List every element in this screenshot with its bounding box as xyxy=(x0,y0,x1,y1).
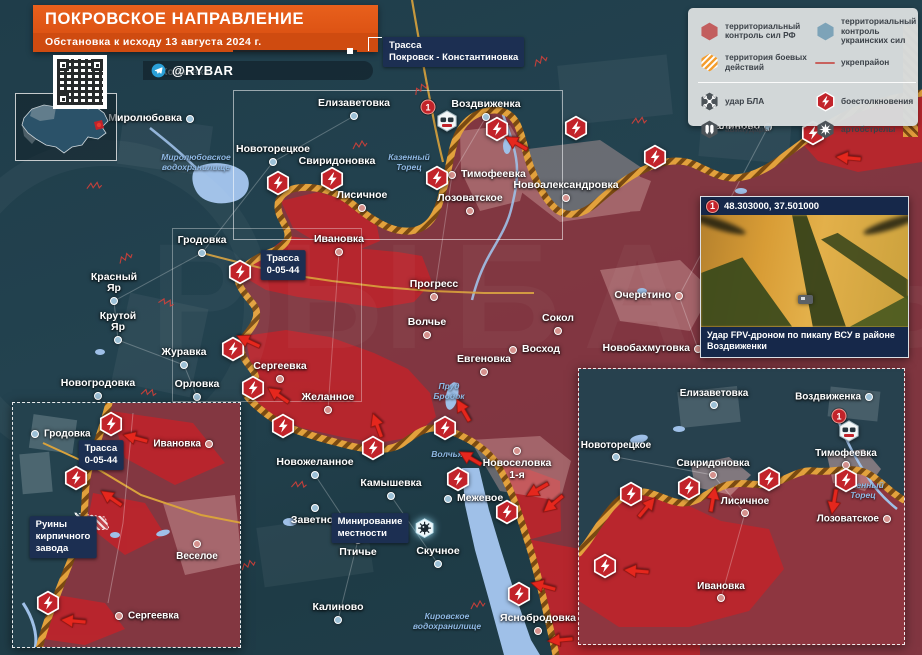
attack-arrow-icon xyxy=(94,482,129,514)
town-dot xyxy=(198,249,206,257)
fortification-mark xyxy=(531,51,549,65)
map-poster: РЫБАРЬ МиролюбовкаКопаевкаЕлизаветовкаВо… xyxy=(0,0,922,655)
town-dot xyxy=(311,504,319,512)
inset-right-layer: ЕлизаветовкаВоздвиженкаНовоторецкоеСвири… xyxy=(579,369,904,644)
channel-bar: @RYBAR xyxy=(143,61,373,80)
combat-icon xyxy=(424,165,450,191)
fortification-mark xyxy=(411,79,429,94)
mine-icon xyxy=(413,517,435,539)
town-label: Орловка xyxy=(175,379,220,391)
inset-map-vozdvizhenka: ЕлизаветовкаВоздвиженкаНовоторецкоеСвири… xyxy=(578,368,905,645)
town-label: Гродовка xyxy=(178,235,227,247)
town-label: Калиново xyxy=(313,602,364,614)
town-label: Сергеевка xyxy=(253,361,306,373)
town-label: Лозоватское xyxy=(437,193,502,205)
legend-item: территориальный контроль сил РФ xyxy=(698,17,810,46)
town-label: Крутой Яр xyxy=(100,311,137,335)
hex-red-icon xyxy=(698,20,720,42)
town-label: Новоторецкое xyxy=(236,144,310,156)
map-box-label: Руиныкирпичногозавода xyxy=(30,516,97,558)
combat-icon xyxy=(270,413,296,439)
town-label: Евгеновка xyxy=(457,354,511,366)
combat-icon xyxy=(227,259,253,285)
town-dot xyxy=(741,509,749,517)
town-label: Яснобродовка xyxy=(500,613,576,625)
town-label: Волчье xyxy=(408,317,447,329)
fortification-mark xyxy=(352,137,368,147)
combat-icon xyxy=(592,553,618,579)
town-label: Красный Яр xyxy=(91,272,137,296)
town-dot xyxy=(180,361,188,369)
scale-line xyxy=(233,50,357,52)
combat-icon xyxy=(756,466,782,492)
town-dot xyxy=(350,112,358,120)
town-label: Птичье xyxy=(339,547,377,559)
inset-left-layer: ГродовкаИвановкаВеселоеСергеевкаТрасса0-… xyxy=(13,403,240,647)
attack-arrow-icon xyxy=(702,483,725,516)
town-label: Ивановка xyxy=(153,438,201,449)
attack-arrow-icon xyxy=(499,128,534,159)
town-dot xyxy=(709,471,717,479)
fortification-mark xyxy=(116,248,134,262)
attack-arrow-icon xyxy=(832,148,863,169)
legend-item-label: территориальный контроль украинских сил xyxy=(841,17,916,46)
town-dot xyxy=(110,297,118,305)
town-dot xyxy=(423,331,431,339)
town-dot xyxy=(554,327,562,335)
qr-finder-icon xyxy=(57,59,69,71)
town-dot xyxy=(114,336,122,344)
qr-finder-icon xyxy=(91,59,103,71)
combat-icon xyxy=(676,475,702,501)
road-label-leader xyxy=(368,37,382,51)
fortification-mark xyxy=(291,475,309,489)
combat-icon xyxy=(563,115,589,141)
town-label: Камышевка xyxy=(360,478,421,490)
hex-uav-icon xyxy=(698,91,720,113)
photo-coordinates: 48.303000, 37.501000 xyxy=(724,201,819,212)
qr-pattern xyxy=(57,59,103,105)
legend-item-label: укрепрайон xyxy=(841,58,889,68)
town-dot xyxy=(865,393,873,401)
town-dot xyxy=(675,292,683,300)
town-dot xyxy=(434,560,442,568)
water-label: Кировское водохранилище xyxy=(413,612,481,632)
legend-item-label: территория боевых действий xyxy=(725,53,810,72)
town-label: Лисичное xyxy=(721,496,769,507)
legend-item-label: артобстрелы xyxy=(841,125,895,135)
town-label: Новобахмутовка xyxy=(603,343,690,355)
legend-item: артобстрелы xyxy=(814,119,916,141)
combat-icon xyxy=(265,170,291,196)
legend-item: территориальный контроль украинских сил xyxy=(814,17,916,46)
town-dot xyxy=(430,293,438,301)
combat-icon xyxy=(432,415,458,441)
town-dot xyxy=(205,440,213,448)
town-dot xyxy=(31,430,39,438)
fortification-mark xyxy=(239,556,256,569)
town-dot xyxy=(193,540,201,548)
town-dot xyxy=(334,616,342,624)
town-dot xyxy=(612,453,620,461)
photo-inset: 1 48.303000, 37.501000 Удар FPV-дроном п… xyxy=(700,196,909,358)
town-dot xyxy=(335,248,343,256)
diamond-clash-icon xyxy=(814,91,836,113)
hex-blue-icon xyxy=(814,20,836,42)
town-dot xyxy=(883,515,891,523)
town-label: Ивановка xyxy=(314,234,364,246)
combat-icon xyxy=(494,499,520,525)
legend-item-label: удар БЛА xyxy=(725,97,764,107)
line-red-icon xyxy=(814,52,836,74)
town-label: Тимофеевка xyxy=(815,448,877,459)
town-label: Веселое xyxy=(176,551,218,562)
town-label: Журавка xyxy=(162,347,207,359)
photo-marker-number: 1 xyxy=(706,200,719,213)
page-title: ПОКРОВСКОЕ НАПРАВЛЕНИЕ xyxy=(33,5,378,33)
photo-caption: Удар FPV-дроном по пикапу ВСУ в районе В… xyxy=(701,327,908,357)
town-dot xyxy=(324,406,332,414)
combat-icon xyxy=(35,590,61,616)
map-box-label: Трасса0-05-44 xyxy=(261,250,306,280)
legend-item-label: боестолкновения xyxy=(841,97,913,107)
map-box-label: ТрассаПокровск - Константиновка xyxy=(383,37,524,67)
town-label: Елизаветовка xyxy=(318,98,390,110)
town-label: Воздвиженка xyxy=(795,391,861,402)
attack-arrow-icon xyxy=(57,611,88,632)
town-dot xyxy=(186,115,194,123)
inset-map-grodovka: ГродовкаИвановкаВеселоеСергеевкаТрасса0-… xyxy=(12,402,241,648)
town-dot xyxy=(444,495,452,503)
town-dot xyxy=(269,158,277,166)
legend-item: боестолкновения xyxy=(814,91,916,113)
town-dot xyxy=(562,194,570,202)
telegram-icon xyxy=(151,63,166,78)
combat-icon xyxy=(642,144,668,170)
town-dot xyxy=(480,368,488,376)
hex-avia-icon xyxy=(698,119,720,141)
fortification-mark xyxy=(86,177,103,190)
town-label: Желанное xyxy=(302,392,355,404)
combat-icon xyxy=(445,466,471,492)
legend-item-label: территориальный контроль сил РФ xyxy=(725,22,810,41)
drone-propeller xyxy=(862,215,908,238)
town-label: Новожеланное xyxy=(276,457,353,469)
fpv-drone-photo xyxy=(701,215,908,327)
town-label: Ивановка xyxy=(697,581,745,592)
town-dot xyxy=(717,594,725,602)
town-dot xyxy=(276,375,284,383)
qr-finder-icon xyxy=(57,93,69,105)
legend-item: удар БЛА xyxy=(698,91,810,113)
fpv-strike-icon xyxy=(435,109,459,133)
town-label: Свиридоновка xyxy=(676,458,749,469)
town-dot xyxy=(94,392,102,400)
town-dot xyxy=(513,447,521,455)
town-label: Прогресс xyxy=(410,279,459,291)
attack-arrow-icon xyxy=(544,630,575,651)
town-label: Новоторецкое xyxy=(581,440,651,451)
hex-arty-icon xyxy=(814,119,836,141)
photo-pickup-truck xyxy=(798,295,813,304)
town-dot xyxy=(193,393,201,401)
map-box-label: Минированиеместности xyxy=(332,513,409,543)
legend-item: территория боевых действий xyxy=(698,52,810,74)
attack-arrow-icon xyxy=(620,561,651,582)
town-label: Новоалександровка xyxy=(513,180,618,192)
qr-code xyxy=(53,55,107,109)
drone-propeller xyxy=(701,215,747,238)
town-label: Сокол xyxy=(542,313,574,325)
town-label: Воздвиженка xyxy=(451,99,520,111)
channel-handle: @RYBAR xyxy=(172,63,233,78)
town-dot xyxy=(387,492,395,500)
town-dot xyxy=(466,207,474,215)
town-dot xyxy=(311,471,319,479)
legend-divider xyxy=(698,82,916,83)
town-dot xyxy=(115,612,123,620)
legend: территориальный контроль сил РФтерритори… xyxy=(688,8,918,126)
town-label: Елизаветовка xyxy=(680,388,749,399)
town-label: Скучное xyxy=(416,546,459,558)
town-label: Гродовка xyxy=(44,428,91,439)
town-label: Очеретино xyxy=(614,290,671,302)
combat-icon xyxy=(240,375,266,401)
fortification-mark xyxy=(470,597,486,607)
town-dot xyxy=(534,627,542,635)
legend-item: укрепрайон xyxy=(814,52,916,74)
combat-icon xyxy=(319,166,345,192)
town-dot xyxy=(710,401,718,409)
town-label: Восход xyxy=(522,344,560,356)
fpv-strike-icon xyxy=(837,419,861,443)
town-label: Сергеевка xyxy=(128,610,179,621)
town-label: Новогродовка xyxy=(61,378,135,390)
fortification-mark xyxy=(631,112,648,125)
photo-marker-number: 1 xyxy=(421,100,436,115)
photo-header: 1 48.303000, 37.501000 xyxy=(701,197,908,215)
combat-icon xyxy=(63,465,89,491)
fortification-mark xyxy=(141,383,159,398)
town-label: Миролюбовка xyxy=(108,113,182,125)
title-banner: ПОКРОВСКОЕ НАПРАВЛЕНИЕ Обстановка к исхо… xyxy=(33,5,378,52)
hex-striped-icon xyxy=(698,52,720,74)
water-label: Миролюбовское водохранилище xyxy=(161,153,231,173)
fortification-mark xyxy=(159,292,178,309)
legend-item: авиаудары xyxy=(698,119,810,141)
town-dot xyxy=(358,204,366,212)
legend-item-label: авиаудары xyxy=(725,125,771,135)
